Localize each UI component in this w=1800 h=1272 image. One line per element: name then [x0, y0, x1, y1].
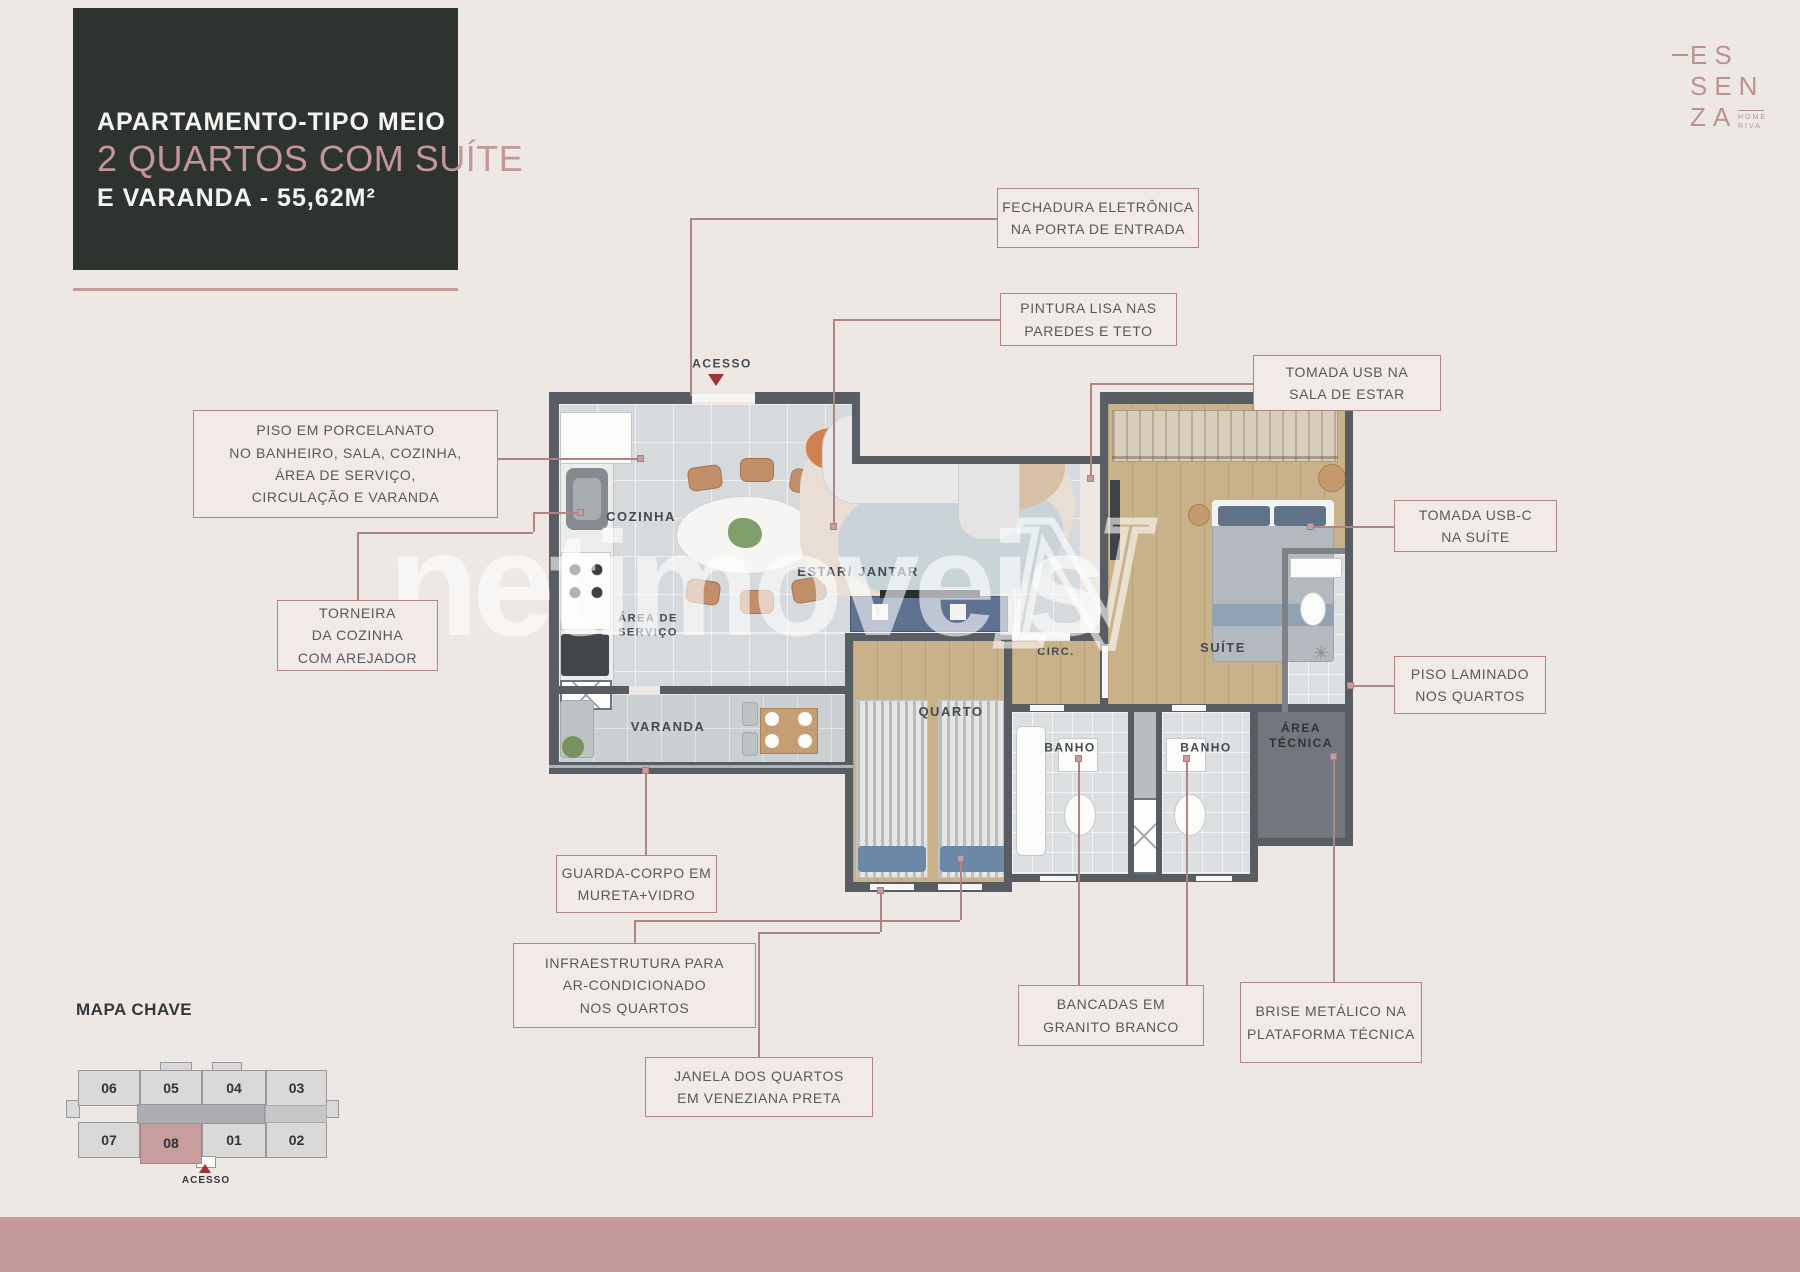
label-banho-2: BANHO — [1180, 741, 1232, 756]
connector-line-fechadura — [690, 218, 692, 396]
callout-piso-porcelanato-text: NO BANHEIRO, SALA, COZINHA, — [229, 442, 461, 464]
floor-plan: ✳ — [0, 0, 1800, 1272]
label-acesso-text: ACESSO — [692, 357, 752, 372]
callout-infraestrutura-text: NOS QUARTOS — [580, 997, 690, 1019]
wall — [549, 686, 629, 694]
connector-line-infraestrutura — [634, 920, 960, 922]
entry-notch — [860, 392, 1100, 456]
label-cozinha-text: COZINHA — [606, 509, 676, 525]
wall — [660, 686, 853, 694]
callout-piso-porcelanato-text: PISO EM PORCELANATO — [256, 419, 434, 441]
connector-dot-piso-porcelanato — [637, 455, 644, 462]
label-area-tecnica-text: TÉCNICA — [1269, 736, 1333, 751]
wall — [1282, 548, 1345, 554]
twin-bed-1-pillow — [858, 846, 926, 872]
connector-line-infraestrutura — [960, 858, 962, 920]
suite-bath-toilet — [1300, 592, 1326, 626]
callout-piso-porcelanato: PISO EM PORCELANATONO BANHEIRO, SALA, CO… — [193, 410, 498, 518]
callout-pintura-text: PAREDES E TETO — [1024, 320, 1152, 342]
callout-guarda-corpo-text: MURETA+VIDRO — [578, 884, 696, 906]
bottom-band — [0, 1217, 1800, 1272]
callout-piso-porcelanato-text: ÁREA DE SERVIÇO, — [275, 464, 416, 486]
connector-line-brise — [1333, 756, 1335, 982]
label-banho-1-text: BANHO — [1044, 741, 1096, 756]
callout-infraestrutura-text: AR-CONDICIONADO — [563, 974, 707, 996]
tv-console-speaker — [872, 604, 888, 620]
wall — [1004, 633, 1012, 892]
wall — [1128, 712, 1134, 874]
label-estar-jantar-text: ESTAR/ JANTAR — [797, 564, 919, 580]
connector-line-janela — [880, 890, 882, 932]
callout-infraestrutura-text: INFRAESTRUTURA PARA — [545, 952, 724, 974]
suite-side-table — [1318, 464, 1346, 492]
wall — [1250, 704, 1352, 712]
suite-pillow — [1218, 506, 1270, 526]
callout-piso-laminado: PISO LAMINADONOS QUARTOS — [1394, 656, 1546, 714]
wardrobe-rod — [1112, 456, 1338, 459]
map-title: MAPA CHAVE — [76, 1000, 192, 1020]
connector-line-tomada-usb — [1090, 383, 1253, 385]
suite-pillow — [1274, 506, 1326, 526]
callout-fechadura-text: NA PORTA DE ENTRADA — [1011, 218, 1185, 240]
connector-dot-bancadas-1 — [1075, 755, 1082, 762]
label-area-servico-text: SERVIÇO — [618, 626, 678, 640]
callout-pintura: PINTURA LISA NASPAREDES E TETO — [1000, 293, 1177, 346]
connector-dot-infraestrutura — [957, 855, 964, 862]
wall — [852, 392, 860, 464]
label-quarto: QUARTO — [918, 704, 983, 720]
connector-line-pintura — [833, 319, 835, 526]
wall — [549, 392, 559, 774]
suite-wardrobe — [1112, 410, 1338, 462]
wall — [755, 392, 860, 404]
callout-janela-text: JANELA DOS QUARTOS — [674, 1065, 844, 1087]
dining-chair — [684, 578, 721, 606]
suite-bath-vanity — [1290, 558, 1342, 578]
banho-2-toilet — [1174, 794, 1206, 836]
oven — [561, 634, 609, 676]
banho-1-shower — [1016, 726, 1046, 856]
callout-tomada-usb: TOMADA USB NASALA DE ESTAR — [1253, 355, 1441, 411]
entry-door — [692, 394, 755, 402]
tv — [880, 590, 980, 598]
callout-fechadura-text: FECHADURA ELETRÔNICA — [1002, 196, 1194, 218]
callout-tomada-usb-c: TOMADA USB-CNA SUÍTE — [1394, 500, 1557, 552]
label-circ: CIRC. — [1037, 646, 1074, 660]
varanda-chair — [742, 732, 758, 756]
callout-bancadas-text: BANCADAS EM — [1057, 993, 1166, 1015]
connector-dot-pintura — [830, 523, 837, 530]
connector-dot-bancadas-2 — [1183, 755, 1190, 762]
connector-line-tomada-usb — [1090, 383, 1092, 478]
callout-torneira-text: COM AREJADOR — [298, 647, 417, 669]
connector-line-infraestrutura — [634, 920, 636, 943]
suite-door — [1102, 646, 1108, 698]
connector-line-janela — [758, 932, 760, 1057]
banho-1-toilet — [1064, 794, 1096, 836]
callout-janela: JANELA DOS QUARTOSEM VENEZIANA PRETA — [645, 1057, 873, 1117]
connector-dot-guarda-corpo — [642, 767, 649, 774]
label-banho-2-text: BANHO — [1180, 741, 1232, 756]
connector-line-torneira — [533, 512, 535, 532]
callout-brise-text: BRISE METÁLICO NA — [1255, 1000, 1406, 1022]
wall — [1345, 392, 1353, 846]
wall — [852, 456, 1108, 464]
connector-dot-tomada-usb-c — [1307, 523, 1314, 530]
callout-infraestrutura: INFRAESTRUTURA PARAAR-CONDICIONADONOS QU… — [513, 943, 756, 1028]
callout-brise-text: PLATAFORMA TÉCNICA — [1247, 1023, 1415, 1045]
callout-guarda-corpo: GUARDA-CORPO EMMURETA+VIDRO — [556, 855, 717, 913]
dining-chair — [740, 590, 774, 614]
callout-bancadas: BANCADAS EMGRANITO BRANCO — [1018, 985, 1204, 1046]
connector-line-janela — [758, 932, 880, 934]
shower-icon: ✳ — [1310, 642, 1332, 664]
wall — [845, 633, 1012, 641]
dining-chair — [686, 464, 723, 492]
connector-line-guarda-corpo — [645, 770, 647, 855]
varanda-chair — [742, 702, 758, 726]
callout-pintura-text: PINTURA LISA NAS — [1020, 297, 1156, 319]
table-plant — [728, 518, 762, 548]
varanda-plant — [562, 736, 584, 758]
varanda-plate — [765, 734, 779, 748]
varanda-plate — [765, 712, 779, 726]
callout-tomada-usb-c-text: NA SUÍTE — [1441, 526, 1510, 548]
banho-window — [1040, 876, 1076, 881]
duct-shaft — [1130, 798, 1158, 874]
wall — [1156, 712, 1162, 874]
varanda-plate — [798, 712, 812, 726]
connector-dot-torneira — [577, 509, 584, 516]
connector-line-piso-porcelanato — [497, 458, 640, 460]
connector-dot-janela — [877, 887, 884, 894]
callout-fechadura: FECHADURA ELETRÔNICANA PORTA DE ENTRADA — [997, 188, 1199, 248]
suite-nightstand — [1188, 504, 1210, 526]
guard-glass — [549, 765, 853, 768]
door — [1030, 705, 1064, 711]
wall — [549, 392, 692, 404]
banho-window — [1196, 876, 1232, 881]
label-area-tecnica-text: ÁREA — [1269, 721, 1333, 736]
floor-banho-2 — [1162, 712, 1250, 874]
label-varanda-text: VARANDA — [631, 719, 706, 735]
label-varanda: VARANDA — [631, 719, 706, 735]
callout-piso-laminado-text: NOS QUARTOS — [1415, 685, 1525, 707]
tv-console-speaker — [950, 604, 966, 620]
label-estar-jantar: ESTAR/ JANTAR — [797, 564, 919, 580]
callout-piso-laminado-text: PISO LAMINADO — [1411, 663, 1529, 685]
label-circ-text: CIRC. — [1037, 646, 1074, 660]
callout-tomada-usb-c-text: TOMADA USB-C — [1419, 504, 1533, 526]
connector-line-tomada-usb-c — [1310, 526, 1394, 528]
callout-torneira: TORNEIRADA COZINHACOM AREJADOR — [277, 600, 438, 671]
connector-line-pintura — [833, 319, 1000, 321]
connector-line-piso-laminado — [1350, 685, 1394, 687]
wall — [1250, 704, 1258, 874]
callout-tomada-usb-text: TOMADA USB NA — [1286, 361, 1409, 383]
wall — [1250, 838, 1352, 846]
acesso-arrow — [708, 374, 724, 386]
wall — [845, 633, 853, 892]
label-suite: SUÍTE — [1200, 640, 1246, 656]
page: APARTAMENTO-TIPO MEIO 2 QUARTOS COM SUÍT… — [0, 0, 1800, 1272]
connector-dot-piso-laminado — [1347, 682, 1354, 689]
label-area-servico-text: ÁREA DE — [618, 612, 678, 626]
label-area-tecnica: ÁREATÉCNICA — [1269, 721, 1333, 751]
wall-varanda-guard — [549, 762, 853, 774]
label-area-servico: ÁREA DESERVIÇO — [618, 612, 678, 640]
callout-brise: BRISE METÁLICO NAPLATAFORMA TÉCNICA — [1240, 982, 1422, 1063]
stove — [561, 552, 611, 630]
connector-line-fechadura — [690, 218, 997, 220]
callout-torneira-text: TORNEIRA — [319, 602, 396, 624]
connector-line-bancadas-2 — [1186, 758, 1188, 985]
label-cozinha: COZINHA — [606, 509, 676, 525]
door — [1012, 634, 1070, 640]
connector-line-torneira — [533, 512, 580, 514]
connector-line-torneira — [357, 532, 359, 600]
label-suite-text: SUÍTE — [1200, 640, 1246, 656]
dining-chair — [740, 458, 774, 482]
connector-line-bancadas-1 — [1078, 758, 1080, 985]
label-acesso: ACESSO — [692, 357, 752, 372]
callout-tomada-usb-text: SALA DE ESTAR — [1289, 383, 1405, 405]
wall — [1282, 548, 1288, 712]
suite-tv-panel — [1110, 480, 1120, 560]
door — [1172, 705, 1206, 711]
twin-bed-2-pillow — [940, 846, 1008, 872]
connector-dot-tomada-usb — [1087, 475, 1094, 482]
label-banho-1: BANHO — [1044, 741, 1096, 756]
callout-bancadas-text: GRANITO BRANCO — [1043, 1016, 1179, 1038]
varanda-plate — [798, 734, 812, 748]
callout-guarda-corpo-text: GUARDA-CORPO EM — [562, 862, 712, 884]
callout-janela-text: EM VENEZIANA PRETA — [677, 1087, 841, 1109]
connector-dot-brise — [1330, 753, 1337, 760]
connector-line-torneira — [357, 532, 533, 534]
callout-torneira-text: DA COZINHA — [312, 624, 404, 646]
fridge — [560, 412, 632, 464]
label-quarto-text: QUARTO — [918, 704, 983, 720]
callout-piso-porcelanato-text: CIRCULAÇÃO E VARANDA — [252, 486, 440, 508]
